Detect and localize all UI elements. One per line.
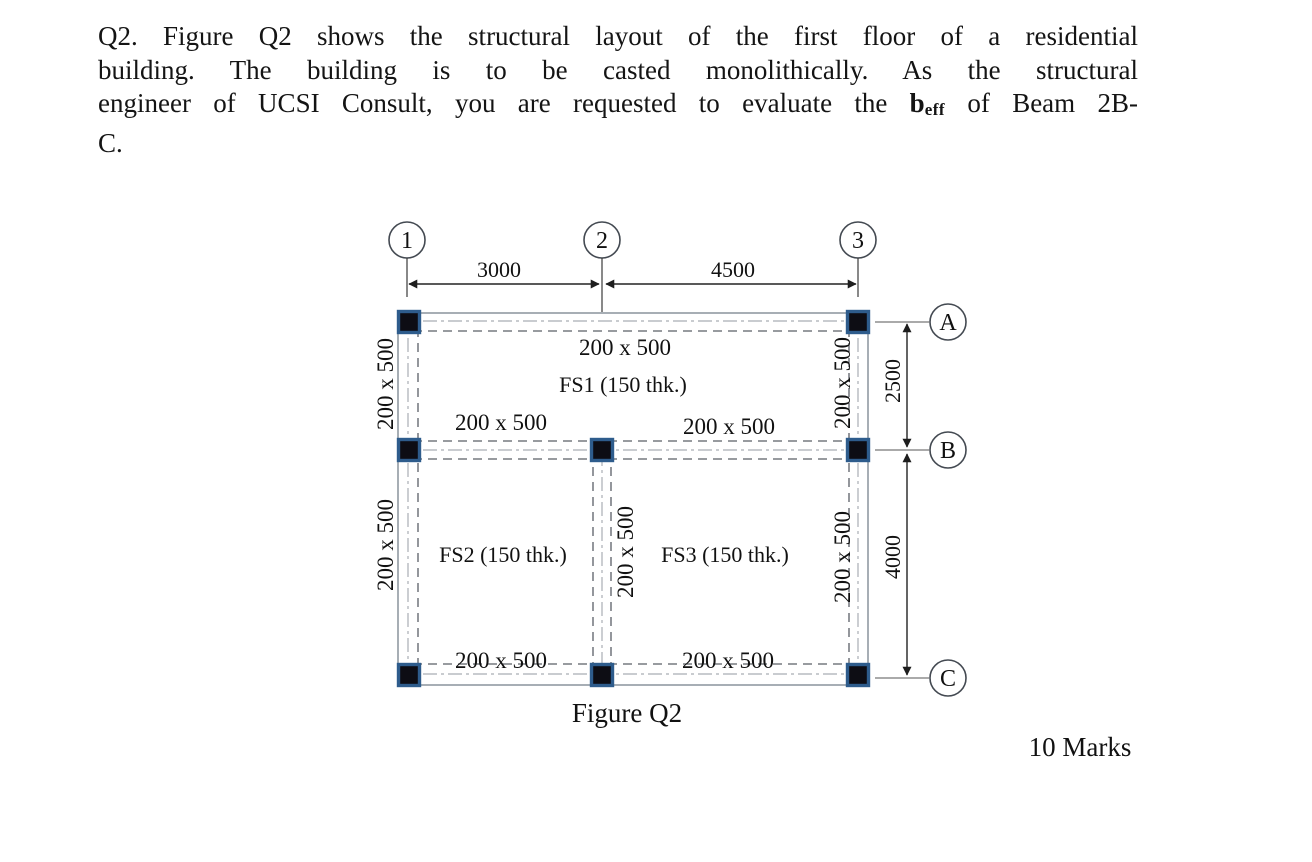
beam-label-right-ab: 200 x 500 [830,337,855,429]
beam-label-left-bc: 200 x 500 [373,499,398,591]
grid-bubble-1-label: 1 [401,228,413,254]
grid-bubble-2-label: 2 [596,228,608,254]
dimension-4500: 4500 [606,257,856,284]
grid-bubble-c: C [930,660,966,696]
slab-label-fs1: FS1 (150 thk.) [559,372,687,397]
beam-label-mid-bc: 200 x 500 [613,506,638,598]
beam-label-row-a: 200 x 500 [579,335,671,360]
column-a3 [848,312,869,333]
column-b1 [399,440,420,461]
column-c3 [848,665,869,686]
slab-outline [398,313,868,685]
grid-bubble-2: 2 [584,222,620,258]
beam-label-left-ab: 200 x 500 [373,338,398,430]
column-a1 [399,312,420,333]
figure-q2-drawing: 1 2 3 3000 4500 20 [0,0,1312,862]
column-b2 [592,440,613,461]
grid-bubble-1: 1 [389,222,425,258]
beam-label-right-bc: 200 x 500 [830,511,855,603]
column-c2 [592,665,613,686]
grid-bubble-a: A [930,304,966,340]
beam-label-row-c-right: 200 x 500 [682,648,774,673]
grid-bubble-3-label: 3 [852,228,864,254]
column-b3 [848,440,869,461]
grid-bubble-c-label: C [940,666,956,692]
column-c1 [399,665,420,686]
dimension-4000-label: 4000 [880,535,905,579]
figure-caption: Figure Q2 [572,698,682,728]
dimension-2500: 2500 [880,324,907,447]
grid-bubble-a-label: A [939,310,957,336]
dimension-4500-label: 4500 [711,257,755,282]
marks-label: 10 Marks [1029,732,1132,762]
grid-bubble-b-label: B [940,438,956,464]
slab-label-fs3: FS3 (150 thk.) [661,542,789,567]
dimension-3000: 3000 [409,257,599,284]
dimension-2500-label: 2500 [880,359,905,403]
beam-label-row-b-right: 200 x 500 [683,414,775,439]
beam-label-row-c-left: 200 x 500 [455,648,547,673]
beam-label-row-b-left: 200 x 500 [455,410,547,435]
grid-bubble-3: 3 [840,222,876,258]
grid-bubble-b: B [930,432,966,468]
slab-label-fs2: FS2 (150 thk.) [439,542,567,567]
dimension-4000: 4000 [880,454,907,675]
dimension-3000-label: 3000 [477,257,521,282]
